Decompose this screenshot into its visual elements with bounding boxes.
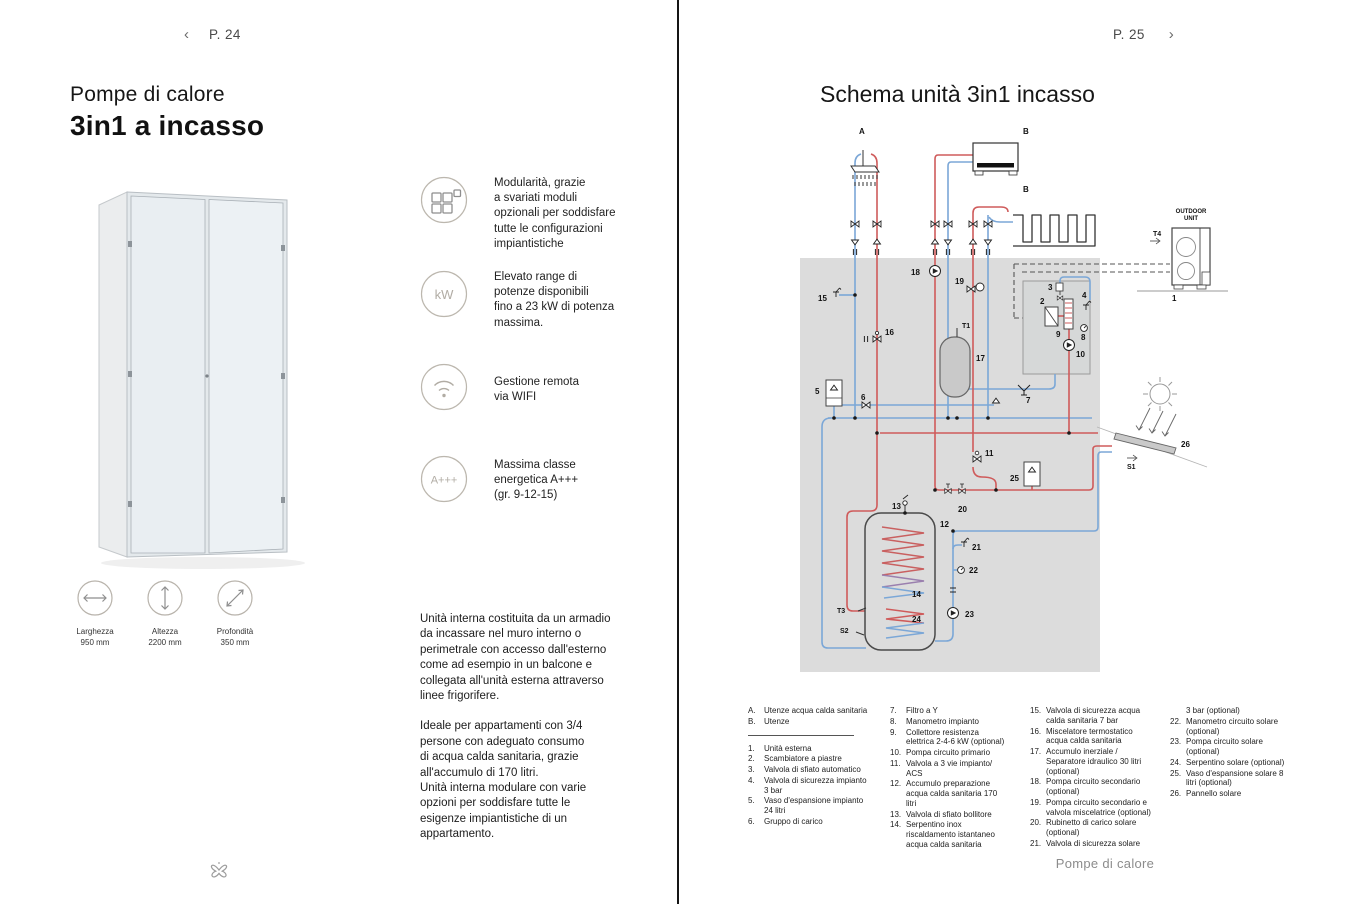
feature-power: kW Elevato range di potenze disponibili … bbox=[420, 270, 680, 331]
buffer-tank-17 bbox=[940, 337, 970, 397]
diagram-label: 3 bbox=[1048, 283, 1053, 292]
legend-item: 24.Serpentino solare (optional) bbox=[1170, 758, 1292, 768]
butterfly-logo-icon bbox=[207, 857, 231, 881]
legend-divider bbox=[748, 735, 854, 736]
dimension-label: Larghezza bbox=[76, 627, 113, 636]
dimension-depth: Profondità350 mm bbox=[200, 579, 270, 649]
diagram-label: 5 bbox=[815, 387, 820, 396]
dimension-height: Altezza2200 mm bbox=[130, 579, 200, 649]
diagram-label: 20 bbox=[958, 505, 967, 514]
legend-item: 11.Valvola a 3 vie impianto/ ACS bbox=[890, 759, 1006, 779]
legend-item: 15.Valvola di sicurezza acqua calda sani… bbox=[1030, 706, 1152, 726]
left-page: ‹ P. 24 Pompe di calore 3in1 a incasso bbox=[0, 0, 677, 904]
dimension-value: 350 mm bbox=[221, 638, 250, 647]
page-number-right: P. 25 bbox=[1113, 27, 1145, 42]
footer-section-label: Pompe di calore bbox=[1040, 856, 1170, 871]
diagram-label: 12 bbox=[940, 520, 949, 529]
legend-item: 20.Rubinetto di carico solare (optional) bbox=[1030, 818, 1152, 838]
feature-text: Massima classe energetica A+++ (gr. 9-12… bbox=[494, 458, 578, 504]
catalog-spread: { "left_page": { "nav": { "back_chevron"… bbox=[0, 0, 1356, 904]
legend-item: 26.Pannello solare bbox=[1170, 789, 1292, 799]
diagram-label: 16 bbox=[885, 328, 894, 337]
legend-item: 4.Valvola di sicurezza impianto 3 bar bbox=[748, 776, 870, 796]
solar-manometer-22 bbox=[958, 567, 965, 574]
diagram-label: 19 bbox=[955, 277, 964, 286]
s1-sensor-arrow bbox=[1127, 455, 1137, 461]
dimension-width: Larghezza950 mm bbox=[60, 579, 130, 649]
height-arrow-icon bbox=[146, 579, 184, 617]
diagram-label: S2 bbox=[840, 628, 849, 635]
body-paragraph-1: Unità interna costituita da un armadio d… bbox=[420, 612, 678, 704]
depth-arrow-icon bbox=[216, 579, 254, 617]
wifi-icon bbox=[420, 363, 468, 411]
plate-exchanger-2 bbox=[1045, 307, 1058, 326]
legend-item: 23.Pompa circuito solare (optional) bbox=[1170, 737, 1292, 757]
solar-pump-23 bbox=[948, 608, 959, 619]
cabinet-illustration bbox=[85, 183, 313, 575]
legend-item: 18.Pompa circuito secondario (optional) bbox=[1030, 777, 1152, 797]
diagram-label: B bbox=[1023, 185, 1029, 194]
legend-item: 7.Filtro a Y bbox=[890, 706, 1006, 716]
dimension-value: 950 mm bbox=[81, 638, 110, 647]
diagram-label: OUTDOOR bbox=[1176, 209, 1207, 215]
diagram-label: A bbox=[859, 127, 865, 136]
diagram-label: 26 bbox=[1181, 440, 1190, 449]
feature-energy-class: A+++ Massima classe energetica A+++ (gr.… bbox=[420, 455, 680, 504]
diagram-label: T3 bbox=[837, 608, 845, 615]
dimension-label: Profondità bbox=[217, 627, 253, 636]
diagram-label: T4 bbox=[1153, 231, 1161, 238]
feature-text: Gestione remota via WIFI bbox=[494, 375, 579, 411]
legend-column-1: A.Utenze acqua calda sanitariaB.Utenze1.… bbox=[748, 706, 870, 828]
feature-text: Modularità, grazie a svariati moduli opz… bbox=[494, 176, 615, 252]
legend-item: 12.Accumulo preparazione acqua calda san… bbox=[890, 779, 1006, 808]
modules-icon bbox=[420, 176, 468, 224]
diagram-label: 22 bbox=[969, 566, 978, 575]
legend-item: 22.Manometro circuito solare (optional) bbox=[1170, 717, 1292, 737]
legend-item: 25.Vaso d'espansione solare 8 litri (opt… bbox=[1170, 769, 1292, 789]
legend-item: 17.Accumulo inerziale / Separatore idrau… bbox=[1030, 747, 1152, 776]
diagram-label: 23 bbox=[965, 610, 974, 619]
legend-item: 3.Valvola di sfiato automatico bbox=[748, 765, 870, 775]
feature-text: Elevato range di potenze disponibili fin… bbox=[494, 270, 614, 331]
fancoil-icon bbox=[973, 143, 1018, 175]
diagram-label: S1 bbox=[1127, 464, 1136, 471]
legend-item: 3 bar (optional) bbox=[1170, 706, 1292, 716]
prev-page-chevron-icon[interactable]: ‹ bbox=[184, 26, 189, 43]
floor-heating-coil bbox=[1013, 215, 1095, 246]
legend-item: 8.Manometro impianto bbox=[890, 717, 1006, 727]
sun-icon bbox=[1143, 377, 1177, 411]
sun-ray-arrows bbox=[1136, 408, 1176, 436]
dimensions-row: Larghezza950 mm Altezza2200 mm Profondit… bbox=[60, 579, 270, 649]
feature-wifi: Gestione remota via WIFI bbox=[420, 363, 680, 411]
diagram-label: B bbox=[1023, 127, 1029, 136]
manometer-8 bbox=[1081, 325, 1088, 332]
diagram-label: 25 bbox=[1010, 474, 1019, 483]
page-number-left: P. 24 bbox=[209, 27, 241, 42]
riser-valves bbox=[851, 221, 992, 255]
diagram-label: 4 bbox=[1082, 291, 1087, 300]
solar-expansion-vessel-25 bbox=[1024, 462, 1040, 486]
diagram-label: 11 bbox=[985, 449, 994, 458]
legend-item: 2.Scambiatore a piastre bbox=[748, 754, 870, 764]
pump-10 bbox=[1064, 340, 1075, 351]
electric-collector-9 bbox=[1064, 299, 1073, 329]
primary-pump-18 bbox=[930, 266, 941, 277]
energy-class-icon: A+++ bbox=[420, 455, 468, 503]
feature-modularity: Modularità, grazie a svariati moduli opz… bbox=[420, 176, 680, 252]
svg-text:A+++: A+++ bbox=[431, 475, 458, 487]
diagram-label: 18 bbox=[911, 268, 920, 277]
legend-item: A.Utenze acqua calda sanitaria bbox=[748, 706, 870, 716]
legend-item: 21.Valvola di sicurezza solare bbox=[1030, 839, 1152, 849]
width-arrow-icon bbox=[76, 579, 114, 617]
legend-item: B.Utenze bbox=[748, 717, 870, 727]
schema-title: Schema unità 3in1 incasso bbox=[820, 81, 1095, 108]
diagram-label: UNIT bbox=[1184, 216, 1198, 222]
next-page-chevron-icon[interactable]: › bbox=[1169, 26, 1174, 43]
legend-item: 5.Vaso d'espansione impianto 24 litri bbox=[748, 796, 870, 816]
diagram-label: 1 bbox=[1172, 294, 1177, 303]
outdoor-unit-1 bbox=[1137, 228, 1228, 291]
body-paragraph-2: Ideale per appartamenti con 3/4 persone … bbox=[420, 719, 678, 842]
legend-item: 14.Serpentino inox riscaldamento istanta… bbox=[890, 820, 1006, 849]
diagram-label: 7 bbox=[1026, 396, 1031, 405]
svg-text:kW: kW bbox=[435, 287, 455, 302]
product-image bbox=[85, 183, 313, 580]
section-title: Pompe di calore bbox=[70, 83, 264, 107]
diagram-label: 8 bbox=[1081, 333, 1086, 342]
diagram-label: 13 bbox=[892, 502, 901, 511]
diagram-label: 10 bbox=[1076, 350, 1085, 359]
legend-item: 13.Valvola di sfiato bollitore bbox=[890, 810, 1006, 820]
kw-icon: kW bbox=[420, 270, 468, 318]
electric-module-panel bbox=[1023, 281, 1090, 374]
legend-item: 1.Unità esterna bbox=[748, 744, 870, 754]
legend-column-3: 15.Valvola di sicurezza acqua calda sani… bbox=[1030, 706, 1152, 850]
legend-column-2: 7.Filtro a Y8.Manometro impianto9.Collet… bbox=[890, 706, 1006, 851]
diagram-label: 15 bbox=[818, 294, 827, 303]
diagram-label: 6 bbox=[861, 393, 866, 402]
diagram-label: 14 bbox=[912, 590, 921, 599]
diagram-label: T1 bbox=[962, 323, 970, 330]
legend-column-4: 3 bar (optional)22.Manometro circuito so… bbox=[1170, 706, 1292, 800]
dimension-value: 2200 mm bbox=[148, 638, 181, 647]
product-title: 3in1 a incasso bbox=[70, 110, 264, 142]
hydraulic-schema-diagram: ABB18191516T1172349810756112520131221222… bbox=[740, 118, 1310, 690]
legend-item: 19.Pompa circuito secondario e valvola m… bbox=[1030, 798, 1152, 818]
legend-item: 16.Miscelatore termostatico acqua calda … bbox=[1030, 727, 1152, 747]
expansion-vessel-5 bbox=[826, 380, 842, 406]
legend-item: 6.Gruppo di carico bbox=[748, 817, 870, 827]
diagram-label: 21 bbox=[972, 543, 981, 552]
diagram-label: 17 bbox=[976, 354, 985, 363]
diagram-label: 9 bbox=[1056, 330, 1061, 339]
legend-item: 9.Collettore resistenza elettrica 2-4-6 … bbox=[890, 728, 1006, 748]
diagram-label: 24 bbox=[912, 615, 921, 624]
legend-item: 10.Pompa circuito primario bbox=[890, 748, 1006, 758]
solar-panel-26 bbox=[1114, 433, 1176, 454]
dimension-label: Altezza bbox=[152, 627, 178, 636]
diagram-label: 2 bbox=[1040, 297, 1045, 306]
